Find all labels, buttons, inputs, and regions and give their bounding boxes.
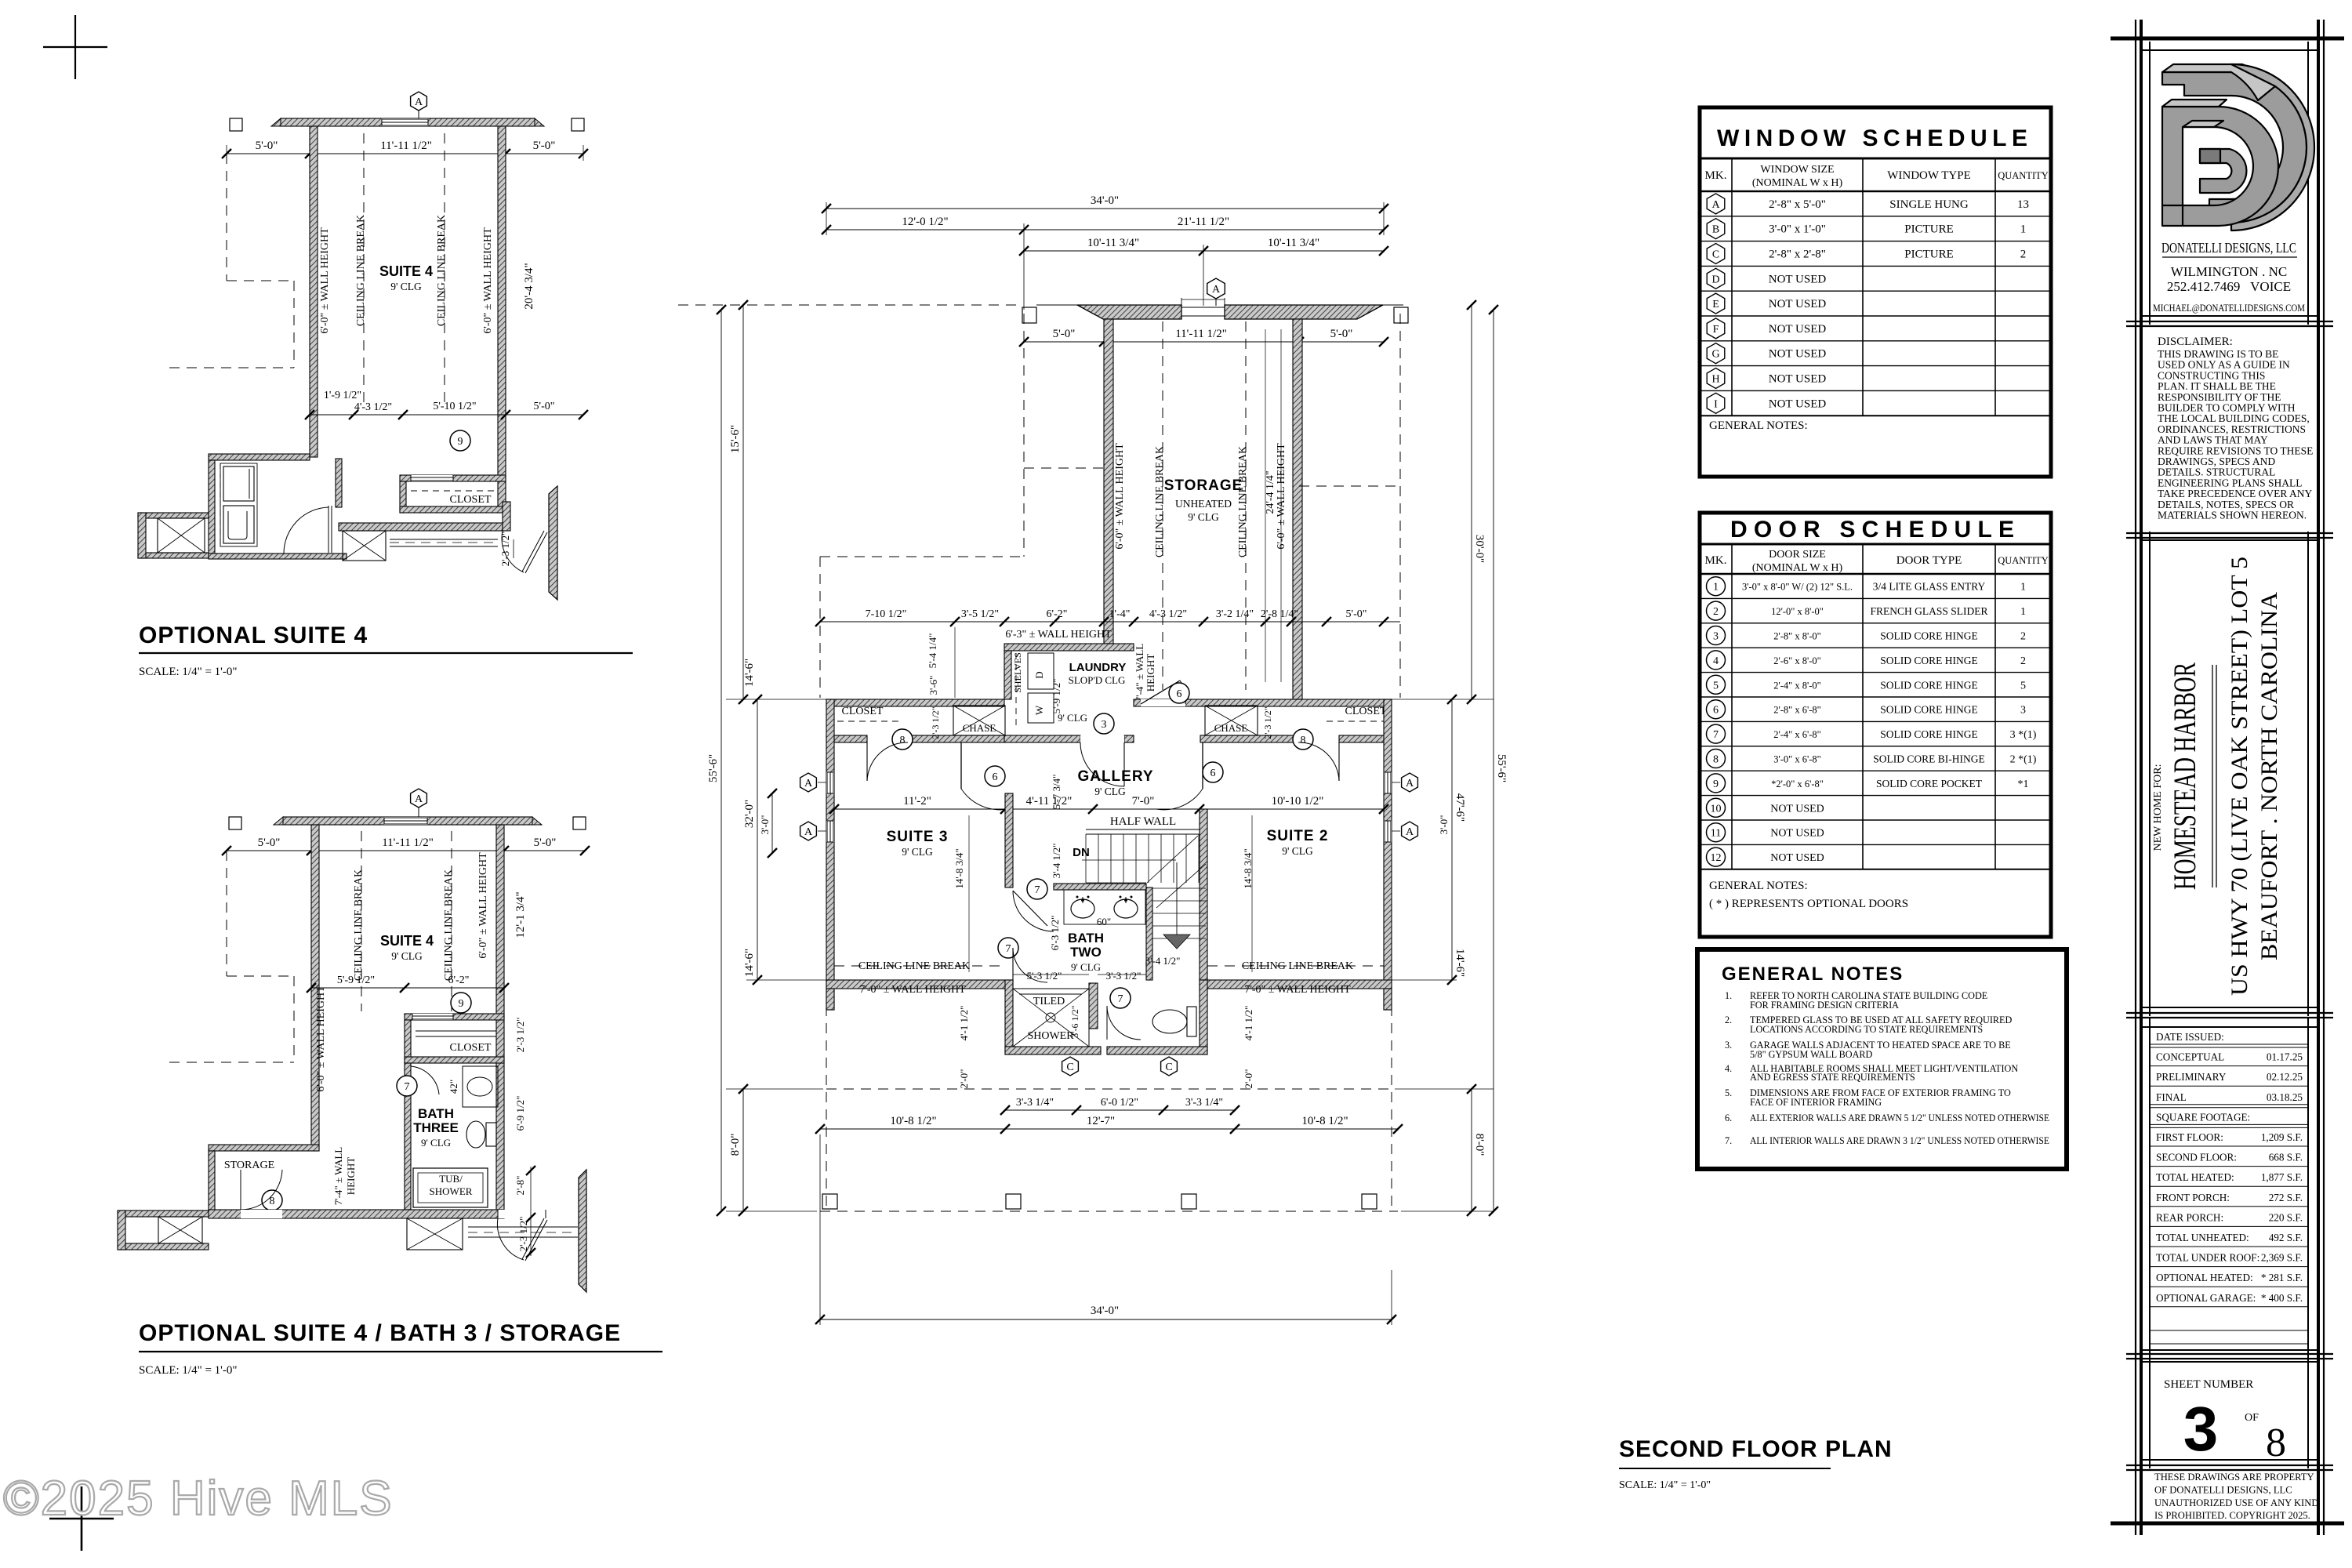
svg-text:SUITE 4: SUITE 4 bbox=[380, 933, 434, 949]
svg-text:SCALE: 1/4" = 1'-0": SCALE: 1/4" = 1'-0" bbox=[1619, 1479, 1711, 1491]
svg-text:DOOR SCHEDULE: DOOR SCHEDULE bbox=[1730, 517, 2020, 543]
svg-text:B: B bbox=[1712, 224, 1719, 236]
svg-text:SHEET NUMBER: SHEET NUMBER bbox=[2164, 1378, 2253, 1391]
svg-text:9: 9 bbox=[459, 998, 464, 1010]
svg-text:(NOMINAL W x H): (NOMINAL W x H) bbox=[1752, 562, 1843, 574]
svg-text:SCALE: 1/4" = 1'-0": SCALE: 1/4" = 1'-0" bbox=[139, 1364, 238, 1377]
svg-text:60": 60" bbox=[1097, 916, 1111, 927]
svg-text:1'-4": 1'-4" bbox=[1109, 608, 1131, 620]
svg-text:MK.: MK. bbox=[1705, 169, 1727, 182]
svg-text:FIRST FLOOR:: FIRST FLOOR: bbox=[2156, 1131, 2223, 1143]
svg-text:55'-6": 55'-6" bbox=[707, 754, 720, 782]
svg-text:NOT USED: NOT USED bbox=[1769, 298, 1827, 310]
svg-text:11'-11 1/2": 11'-11 1/2" bbox=[1175, 328, 1227, 340]
svg-text:1: 1 bbox=[2020, 582, 2026, 593]
svg-text:CLOSET: CLOSET bbox=[842, 706, 884, 717]
svg-text:3'-4 1/2": 3'-4 1/2" bbox=[1051, 844, 1062, 879]
svg-text:1,209 S.F.: 1,209 S.F. bbox=[2261, 1131, 2303, 1143]
svg-text:CEILING LINE BREAK: CEILING LINE BREAK bbox=[1154, 446, 1166, 557]
svg-text:6.: 6. bbox=[1725, 1112, 1732, 1123]
svg-text:13: 13 bbox=[2017, 198, 2029, 211]
svg-text:HEIGHT: HEIGHT bbox=[345, 1157, 357, 1195]
svg-text:9' CLG: 9' CLG bbox=[902, 846, 933, 858]
svg-text:9: 9 bbox=[1713, 779, 1719, 790]
svg-text:3'-2 1/4": 3'-2 1/4" bbox=[1216, 608, 1254, 620]
svg-text:A: A bbox=[1212, 284, 1221, 296]
svg-text:DONATELLI DESIGNS, LLC: DONATELLI DESIGNS, LLC bbox=[2161, 240, 2296, 256]
svg-text:3'-0" x 6'-8": 3'-0" x 6'-8" bbox=[1773, 754, 1821, 765]
svg-text:6'-0" ± WALL HEIGHT: 6'-0" ± WALL HEIGHT bbox=[1276, 443, 1287, 550]
svg-text:WINDOW SIZE: WINDOW SIZE bbox=[1760, 164, 1834, 176]
svg-text:10: 10 bbox=[1711, 803, 1722, 815]
svg-text:10'-8 1/2": 10'-8 1/2" bbox=[890, 1115, 936, 1127]
svg-text:34'-0": 34'-0" bbox=[1091, 194, 1119, 207]
svg-text:24'-4 1/4": 24'-4 1/4" bbox=[1265, 470, 1276, 514]
svg-text:SECOND FLOOR:: SECOND FLOOR: bbox=[2156, 1152, 2237, 1163]
svg-text:32'-0": 32'-0" bbox=[743, 800, 756, 828]
svg-text:1: 1 bbox=[2020, 223, 2027, 236]
svg-text:NOT USED: NOT USED bbox=[1770, 828, 1824, 840]
svg-text:MATERIALS SHOWN HEREON.: MATERIALS SHOWN HEREON. bbox=[2158, 510, 2307, 521]
svg-text:TILED: TILED bbox=[1033, 996, 1065, 1007]
svg-text:WILMINGTON . NC: WILMINGTON . NC bbox=[2171, 264, 2287, 279]
svg-text:8'-0": 8'-0" bbox=[1473, 1134, 1486, 1156]
svg-text:*1: *1 bbox=[2018, 779, 2029, 790]
svg-text:CEILING LINE BREAK: CEILING LINE BREAK bbox=[436, 215, 448, 326]
svg-text:2'-8" x 6'-8": 2'-8" x 6'-8" bbox=[1773, 705, 1821, 716]
svg-text:THREE: THREE bbox=[413, 1120, 459, 1135]
svg-text:7'-4" ± WALL: 7'-4" ± WALL bbox=[1134, 644, 1145, 702]
svg-text:FRENCH GLASS SLIDER: FRENCH GLASS SLIDER bbox=[1870, 605, 1987, 617]
svg-text:SQUARE FOOTAGE:: SQUARE FOOTAGE: bbox=[2156, 1111, 2250, 1123]
svg-text:6'-2": 6'-2" bbox=[448, 975, 470, 986]
svg-text:6: 6 bbox=[1713, 705, 1719, 717]
svg-text:10'-11 3/4": 10'-11 3/4" bbox=[1268, 237, 1319, 249]
svg-text:9' CLG: 9' CLG bbox=[1282, 845, 1313, 857]
svg-text:DOOR TYPE: DOOR TYPE bbox=[1896, 554, 1962, 567]
svg-text:NOT USED: NOT USED bbox=[1769, 323, 1827, 336]
svg-text:4: 4 bbox=[1713, 655, 1719, 667]
svg-text:2'-3 1/2": 2'-3 1/2" bbox=[514, 1018, 526, 1053]
svg-text:3: 3 bbox=[2020, 705, 2026, 717]
svg-text:GENERAL NOTES:: GENERAL NOTES: bbox=[1709, 880, 1808, 892]
svg-text:2'-8": 2'-8" bbox=[514, 1176, 526, 1196]
svg-text:SUITE 3: SUITE 3 bbox=[887, 829, 949, 845]
svg-text:2'-3 1/2": 2'-3 1/2" bbox=[517, 1217, 529, 1252]
svg-text:6'-3 1/2": 6'-3 1/2" bbox=[1049, 916, 1061, 951]
svg-text:* 281 S.F.: * 281 S.F. bbox=[2261, 1272, 2303, 1283]
svg-text:( * ) REPRESENTS OPTIONAL DOOR: ( * ) REPRESENTS OPTIONAL DOORS bbox=[1709, 898, 1908, 910]
svg-text:NOT USED: NOT USED bbox=[1770, 852, 1824, 864]
svg-text:5'-9 1/2": 5'-9 1/2" bbox=[1051, 679, 1062, 714]
svg-text:7'-0": 7'-0" bbox=[1132, 795, 1155, 808]
svg-text:2'-0": 2'-0" bbox=[958, 1069, 970, 1089]
svg-text:3'-0" x 1'-0": 3'-0" x 1'-0" bbox=[1769, 223, 1826, 236]
svg-text:1.: 1. bbox=[1725, 990, 1732, 1001]
svg-text:REAR PORCH:: REAR PORCH: bbox=[2156, 1211, 2223, 1223]
svg-text:A: A bbox=[1406, 826, 1414, 838]
svg-text:2: 2 bbox=[1713, 606, 1719, 618]
svg-text:272 S.F.: 272 S.F. bbox=[2269, 1192, 2303, 1203]
svg-text:02.12.25: 02.12.25 bbox=[2267, 1071, 2303, 1083]
svg-text:3'-3 1/4": 3'-3 1/4" bbox=[1185, 1097, 1223, 1109]
svg-text:5'-0": 5'-0" bbox=[1053, 328, 1076, 340]
svg-text:30'-0": 30'-0" bbox=[1473, 535, 1486, 563]
svg-text:CEILING LINE BREAK: CEILING LINE BREAK bbox=[443, 869, 455, 981]
svg-text:03.18.25: 03.18.25 bbox=[2267, 1091, 2303, 1103]
svg-text:11'-2": 11'-2" bbox=[903, 795, 931, 808]
svg-text:3'-0" x 8'-0" W/ (2) 12" S.L.: 3'-0" x 8'-0" W/ (2) 12" S.L. bbox=[1742, 582, 1853, 593]
svg-text:668 S.F.: 668 S.F. bbox=[2269, 1152, 2303, 1163]
svg-text:14'-6": 14'-6" bbox=[743, 659, 756, 687]
svg-text:OF: OF bbox=[2245, 1412, 2259, 1424]
svg-text:5'-0": 5'-0" bbox=[258, 837, 281, 849]
svg-text:12'-0" x 8'-0": 12'-0" x 8'-0" bbox=[1771, 606, 1824, 617]
svg-text:9: 9 bbox=[458, 436, 463, 448]
svg-text:GALLERY: GALLERY bbox=[1077, 768, 1153, 785]
svg-text:THESE DRAWINGS ARE PROPERTY: THESE DRAWINGS ARE PROPERTY bbox=[2154, 1472, 2314, 1483]
svg-text:A: A bbox=[1711, 199, 1720, 211]
svg-text:7: 7 bbox=[1035, 884, 1040, 896]
svg-text:NOT USED: NOT USED bbox=[1769, 348, 1827, 361]
svg-text:CONCEPTUAL: CONCEPTUAL bbox=[2156, 1051, 2224, 1063]
svg-text:UNAUTHORIZED USE OF ANY KIND: UNAUTHORIZED USE OF ANY KIND bbox=[2154, 1497, 2318, 1508]
svg-text:DOOR SIZE: DOOR SIZE bbox=[1769, 549, 1826, 561]
svg-text:10'-8 1/2": 10'-8 1/2" bbox=[1301, 1115, 1348, 1127]
svg-text:HEIGHT: HEIGHT bbox=[1145, 654, 1156, 691]
svg-text:8: 8 bbox=[1301, 735, 1306, 746]
svg-text:G: G bbox=[1711, 349, 1719, 361]
svg-text:3'-3 1/4": 3'-3 1/4" bbox=[1016, 1097, 1054, 1109]
svg-text:20'-4 3/4": 20'-4 3/4" bbox=[523, 263, 535, 309]
svg-text:4'-1 1/2": 4'-1 1/2" bbox=[1243, 1006, 1254, 1041]
svg-text:252.412.7469 VOICE: 252.412.7469 VOICE bbox=[2167, 279, 2291, 294]
svg-text:A: A bbox=[1406, 778, 1414, 789]
svg-text:2'-3 1/2": 2'-3 1/2" bbox=[499, 532, 511, 567]
svg-text:(NOMINAL W x H): (NOMINAL W x H) bbox=[1752, 177, 1843, 189]
svg-text:12'-7": 12'-7" bbox=[1087, 1115, 1115, 1127]
svg-text:55'-6": 55'-6" bbox=[1495, 754, 1508, 782]
svg-text:12: 12 bbox=[1711, 852, 1722, 864]
svg-text:8: 8 bbox=[1713, 754, 1719, 766]
svg-text:5'-9 1/2": 5'-9 1/2" bbox=[337, 975, 375, 986]
svg-text:CHASE: CHASE bbox=[1214, 722, 1248, 734]
svg-text:9' CLG: 9' CLG bbox=[421, 1137, 451, 1149]
svg-text:CEILING LINE BREAK: CEILING LINE BREAK bbox=[858, 960, 970, 972]
svg-text:ALL INTERIOR WALLS ARE DRAWN 3: ALL INTERIOR WALLS ARE DRAWN 3 1/2" UNLE… bbox=[1750, 1135, 2049, 1146]
svg-text:I: I bbox=[1714, 398, 1718, 410]
svg-text:SOLID CORE HINGE: SOLID CORE HINGE bbox=[1880, 655, 1978, 666]
svg-text:2'-4" x 8'-0": 2'-4" x 8'-0" bbox=[1773, 680, 1821, 691]
svg-text:NEW HOME FOR:: NEW HOME FOR: bbox=[2152, 764, 2164, 851]
svg-text:2'-3 1/2": 2'-3 1/2" bbox=[930, 706, 941, 739]
svg-text:PICTURE: PICTURE bbox=[1904, 249, 1954, 261]
svg-text:* 400 S.F.: * 400 S.F. bbox=[2261, 1292, 2303, 1304]
svg-text:6: 6 bbox=[1210, 768, 1216, 779]
svg-text:HOMESTEAD HARBOR: HOMESTEAD HARBOR bbox=[2167, 662, 2202, 890]
svg-text:7-10 1/2": 7-10 1/2" bbox=[866, 608, 907, 620]
svg-text:BATH: BATH bbox=[1068, 931, 1104, 946]
svg-text:3: 3 bbox=[1713, 631, 1719, 643]
svg-text:SOLID CORE HINGE: SOLID CORE HINGE bbox=[1880, 630, 1978, 642]
svg-text:NOT USED: NOT USED bbox=[1770, 803, 1824, 815]
svg-text:AND EGRESS STATE REQUIREMENTS: AND EGRESS STATE REQUIREMENTS bbox=[1750, 1072, 1915, 1083]
svg-text:3: 3 bbox=[1102, 719, 1107, 731]
svg-text:5: 5 bbox=[2020, 680, 2026, 691]
svg-text:5'-0": 5'-0" bbox=[1346, 608, 1367, 620]
svg-text:OPTIONAL SUITE 4 / BATH 3 / ST: OPTIONAL SUITE 4 / BATH 3 / STORAGE bbox=[139, 1320, 621, 1346]
svg-text:4'-3 1/2": 4'-3 1/2" bbox=[1149, 608, 1187, 620]
svg-text:3'-0": 3'-0" bbox=[759, 815, 771, 835]
svg-text:5'-0": 5'-0" bbox=[534, 837, 557, 849]
svg-text:5: 5 bbox=[1713, 680, 1719, 691]
svg-text:2'-6" x 8'-0": 2'-6" x 8'-0" bbox=[1773, 655, 1821, 666]
svg-text:9' CLG: 9' CLG bbox=[1058, 712, 1087, 724]
svg-text:TOTAL HEATED:: TOTAL HEATED: bbox=[2156, 1171, 2234, 1183]
svg-text:3/4 LITE GLASS ENTRY: 3/4 LITE GLASS ENTRY bbox=[1873, 581, 1986, 593]
svg-text:4'-3 1/2": 4'-3 1/2" bbox=[354, 401, 392, 413]
svg-text:W: W bbox=[1033, 705, 1045, 715]
svg-text:9' CLG: 9' CLG bbox=[391, 950, 423, 962]
svg-text:CEILING LINE BREAK: CEILING LINE BREAK bbox=[1242, 960, 1353, 972]
svg-text:10'-10 1/2": 10'-10 1/2" bbox=[1272, 795, 1324, 808]
svg-text:5'-0": 5'-0" bbox=[533, 140, 556, 152]
svg-text:NOT USED: NOT USED bbox=[1769, 373, 1827, 386]
svg-text:11'-11 1/2": 11'-11 1/2" bbox=[382, 837, 434, 849]
svg-text:DISCLAIMER:: DISCLAIMER: bbox=[2158, 336, 2233, 348]
svg-text:1'-9 1/2": 1'-9 1/2" bbox=[324, 390, 361, 401]
svg-text:2 *(1): 2 *(1) bbox=[2010, 754, 2037, 766]
svg-text:SUITE 2: SUITE 2 bbox=[1267, 828, 1329, 844]
svg-text:9' CLG: 9' CLG bbox=[1094, 786, 1126, 797]
svg-text:NOT USED: NOT USED bbox=[1769, 273, 1827, 285]
svg-text:47'-6": 47'-6" bbox=[1454, 793, 1466, 822]
svg-text:2'-0": 2'-0" bbox=[1243, 1069, 1254, 1089]
svg-text:CEILING LINE BREAK: CEILING LINE BREAK bbox=[1237, 446, 1249, 557]
svg-text:*2'-0" x 6'-8": *2'-0" x 6'-8" bbox=[1771, 779, 1824, 789]
svg-text:SHOWER: SHOWER bbox=[1027, 1030, 1074, 1042]
svg-text:TOTAL UNHEATED:: TOTAL UNHEATED: bbox=[2156, 1232, 2249, 1243]
svg-text:CLOSET: CLOSET bbox=[450, 1042, 492, 1054]
svg-text:CEILING LINE BREAK: CEILING LINE BREAK bbox=[353, 869, 365, 981]
svg-text:D: D bbox=[1033, 671, 1045, 678]
svg-text:8: 8 bbox=[2266, 1421, 2286, 1465]
svg-text:SECOND FLOOR PLAN: SECOND FLOOR PLAN bbox=[1619, 1436, 1893, 1462]
svg-text:3'-0": 3'-0" bbox=[1438, 815, 1450, 835]
svg-text:2'-8 1/4": 2'-8 1/4" bbox=[1261, 608, 1298, 620]
svg-text:US HWY 70 (LIVE OAK STREET) LO: US HWY 70 (LIVE OAK STREET) LOT 5 bbox=[2227, 557, 2252, 996]
svg-text:FINAL: FINAL bbox=[2156, 1091, 2187, 1103]
svg-text:7: 7 bbox=[1713, 729, 1719, 741]
svg-text:SHOWER: SHOWER bbox=[430, 1185, 473, 1197]
svg-text:OPTIONAL HEATED:: OPTIONAL HEATED: bbox=[2156, 1272, 2253, 1283]
svg-text:LAUNDRY: LAUNDRY bbox=[1069, 661, 1127, 674]
svg-text:6'-9 1/2": 6'-9 1/2" bbox=[514, 1096, 526, 1131]
svg-text:WINDOW TYPE: WINDOW TYPE bbox=[1887, 169, 1971, 182]
svg-text:220 S.F.: 220 S.F. bbox=[2269, 1211, 2303, 1223]
svg-text:2.: 2. bbox=[1725, 1014, 1732, 1025]
svg-text:MK.: MK. bbox=[1705, 554, 1727, 567]
svg-text:OPTIONAL SUITE 4: OPTIONAL SUITE 4 bbox=[139, 622, 368, 648]
svg-text:8: 8 bbox=[900, 735, 906, 746]
svg-text:7.: 7. bbox=[1725, 1135, 1732, 1146]
svg-text:7: 7 bbox=[1006, 943, 1011, 955]
svg-text:6: 6 bbox=[1177, 688, 1182, 700]
svg-text:9' CLG: 9' CLG bbox=[390, 281, 422, 292]
svg-text:SOLID CORE POCKET: SOLID CORE POCKET bbox=[1876, 778, 1983, 789]
svg-text:2: 2 bbox=[2020, 631, 2026, 643]
svg-text:7'-0" ± WALL HEIGHT: 7'-0" ± WALL HEIGHT bbox=[1244, 984, 1351, 996]
svg-text:14'-8 3/4": 14'-8 3/4" bbox=[953, 848, 965, 888]
svg-text:2'-8" x 2'-8": 2'-8" x 2'-8" bbox=[1769, 249, 1826, 261]
svg-text:4'-11 1/2": 4'-11 1/2" bbox=[1026, 795, 1073, 808]
svg-text:492 S.F.: 492 S.F. bbox=[2269, 1232, 2303, 1243]
svg-text:01.17.25: 01.17.25 bbox=[2267, 1051, 2303, 1063]
svg-text:2'-3 1/2": 2'-3 1/2" bbox=[1262, 706, 1273, 739]
svg-text:HALF WALL: HALF WALL bbox=[1110, 815, 1176, 828]
svg-text:C: C bbox=[1712, 249, 1719, 261]
svg-text:FOR FRAMING DESIGN CRITERIA: FOR FRAMING DESIGN CRITERIA bbox=[1750, 1000, 1899, 1011]
svg-text:2: 2 bbox=[2020, 655, 2026, 667]
svg-text:C: C bbox=[1066, 1062, 1073, 1073]
svg-text:ALL EXTERIOR WALLS ARE DRAWN 5: ALL EXTERIOR WALLS ARE DRAWN 5 1/2" UNLE… bbox=[1750, 1112, 2049, 1123]
svg-text:11'-11 1/2": 11'-11 1/2" bbox=[380, 140, 432, 152]
svg-text:6'-2": 6'-2" bbox=[1047, 608, 1068, 620]
svg-text:F: F bbox=[1713, 324, 1719, 336]
svg-text:6'-0 1/2": 6'-0 1/2" bbox=[1101, 1097, 1138, 1109]
svg-text:1: 1 bbox=[2020, 606, 2026, 618]
svg-text:OPTIONAL GARAGE:: OPTIONAL GARAGE: bbox=[2156, 1292, 2256, 1304]
svg-text:10'-11 3/4": 10'-11 3/4" bbox=[1087, 237, 1139, 249]
svg-text:2'-8" x 5'-0": 2'-8" x 5'-0" bbox=[1769, 198, 1826, 211]
svg-text:SCALE: 1/4" = 1'-0": SCALE: 1/4" = 1'-0" bbox=[139, 666, 238, 678]
svg-text:OF DONATELLI DESIGNS, LLC: OF DONATELLI DESIGNS, LLC bbox=[2154, 1484, 2292, 1495]
svg-text:3 *(1): 3 *(1) bbox=[2010, 729, 2037, 741]
svg-text:5'-0": 5'-0" bbox=[256, 140, 278, 152]
svg-text:SOLID CORE HINGE: SOLID CORE HINGE bbox=[1880, 728, 1978, 740]
svg-text:GENERAL NOTES: GENERAL NOTES bbox=[1722, 964, 1904, 985]
svg-text:5'-3 1/2": 5'-3 1/2" bbox=[1027, 970, 1062, 982]
svg-text:5'-0": 5'-0" bbox=[1330, 328, 1353, 340]
svg-text:MICHAEL@DONATELLIDESIGNS.COM: MICHAEL@DONATELLIDESIGNS.COM bbox=[2153, 303, 2305, 314]
svg-text:2'-4" x 6'-8": 2'-4" x 6'-8" bbox=[1773, 729, 1821, 740]
svg-text:IS PROHIBITED. COPYRIGHT 2025.: IS PROHIBITED. COPYRIGHT 2025. bbox=[2154, 1510, 2310, 1521]
svg-text:15'-6": 15'-6" bbox=[729, 425, 742, 453]
svg-text:6'-0" ± WALL HEIGHT: 6'-0" ± WALL HEIGHT bbox=[1114, 443, 1126, 550]
svg-text:BATH: BATH bbox=[418, 1106, 454, 1121]
svg-text:2'-8" x 8'-0": 2'-8" x 8'-0" bbox=[1773, 631, 1821, 642]
svg-text:A: A bbox=[804, 778, 813, 789]
svg-text:4.: 4. bbox=[1725, 1063, 1732, 1074]
svg-text:6: 6 bbox=[993, 771, 998, 783]
svg-text:CEILING LINE BREAK: CEILING LINE BREAK bbox=[355, 215, 367, 326]
svg-text:FRONT PORCH:: FRONT PORCH: bbox=[2156, 1192, 2230, 1203]
svg-text:3'-4 1/2": 3'-4 1/2" bbox=[1145, 955, 1181, 967]
svg-text:4'-1 1/2": 4'-1 1/2" bbox=[958, 1006, 970, 1041]
svg-text:6'-3" ± WALL HEIGHT: 6'-3" ± WALL HEIGHT bbox=[1005, 629, 1112, 641]
svg-text:2,369 S.F.: 2,369 S.F. bbox=[2261, 1252, 2303, 1264]
svg-text:14'-6": 14'-6" bbox=[743, 949, 756, 977]
svg-text:7'-0" ± WALL HEIGHT: 7'-0" ± WALL HEIGHT bbox=[859, 984, 966, 996]
svg-text:TWO: TWO bbox=[1070, 945, 1102, 960]
svg-text:TOTAL UNDER ROOF:: TOTAL UNDER ROOF: bbox=[2156, 1252, 2259, 1264]
svg-text:CLOSET: CLOSET bbox=[450, 494, 492, 506]
svg-text:GENERAL NOTES:: GENERAL NOTES: bbox=[1709, 419, 1808, 432]
svg-text:SHELVES: SHELVES bbox=[1012, 652, 1023, 693]
svg-text:34'-0": 34'-0" bbox=[1091, 1305, 1119, 1317]
svg-text:LOCATIONS ACCORDING TO STATE R: LOCATIONS ACCORDING TO STATE REQUIREMENT… bbox=[1750, 1024, 1983, 1035]
svg-text:11: 11 bbox=[1711, 828, 1721, 840]
svg-text:3: 3 bbox=[2183, 1394, 2219, 1464]
svg-text:5'-0": 5'-0" bbox=[534, 401, 555, 412]
svg-text:5.: 5. bbox=[1725, 1087, 1732, 1098]
svg-text:6'-0" ± WALL HEIGHT: 6'-0" ± WALL HEIGHT bbox=[477, 852, 489, 959]
svg-text:6'-0" ± WALL HEIGHT: 6'-0" ± WALL HEIGHT bbox=[482, 227, 494, 334]
svg-text:3'-6 1/2": 3'-6 1/2" bbox=[1069, 1005, 1080, 1037]
svg-text:9' CLG: 9' CLG bbox=[1071, 961, 1101, 973]
svg-text:SOLID CORE HINGE: SOLID CORE HINGE bbox=[1880, 679, 1978, 691]
svg-text:12'-1 3/4": 12'-1 3/4" bbox=[514, 891, 527, 938]
svg-text:7: 7 bbox=[1118, 993, 1123, 1005]
svg-text:PRELIMINARY: PRELIMINARY bbox=[2156, 1071, 2227, 1083]
svg-text:WINDOW SCHEDULE: WINDOW SCHEDULE bbox=[1717, 125, 2034, 151]
svg-text:3'-5 1/2": 3'-5 1/2" bbox=[961, 608, 999, 620]
svg-text:5/8" GYPSUM WALL BOARD: 5/8" GYPSUM WALL BOARD bbox=[1750, 1049, 1873, 1060]
svg-text:12'-0 1/2": 12'-0 1/2" bbox=[902, 216, 948, 228]
svg-text:A: A bbox=[415, 96, 423, 108]
svg-text:SLOP'D CLG: SLOP'D CLG bbox=[1069, 674, 1126, 686]
svg-text:A: A bbox=[804, 826, 813, 838]
svg-text:1,877 S.F.: 1,877 S.F. bbox=[2261, 1171, 2303, 1183]
svg-text:CHASE: CHASE bbox=[963, 722, 996, 734]
svg-text:FACE OF INTERIOR FRAMING: FACE OF INTERIOR FRAMING bbox=[1750, 1097, 1882, 1108]
svg-text:PICTURE: PICTURE bbox=[1904, 223, 1954, 236]
svg-text:DATE ISSUED:: DATE ISSUED: bbox=[2156, 1031, 2224, 1043]
svg-text:14'-6": 14'-6" bbox=[1454, 949, 1466, 977]
svg-text:D: D bbox=[1711, 274, 1719, 285]
svg-text:9' CLG: 9' CLG bbox=[1188, 511, 1219, 523]
svg-text:7: 7 bbox=[405, 1081, 410, 1093]
svg-text:SOLID CORE BI-HINGE: SOLID CORE BI-HINGE bbox=[1873, 753, 1985, 765]
svg-text:TUB/: TUB/ bbox=[439, 1173, 463, 1185]
svg-text:42": 42" bbox=[448, 1080, 459, 1094]
svg-text:21'-11 1/2": 21'-11 1/2" bbox=[1178, 216, 1229, 228]
svg-text:H: H bbox=[1711, 374, 1719, 386]
svg-text:2: 2 bbox=[2020, 249, 2027, 261]
svg-text:8'-0": 8'-0" bbox=[729, 1134, 742, 1156]
svg-text:SUITE 4: SUITE 4 bbox=[379, 263, 433, 279]
svg-text:CLOSET: CLOSET bbox=[1345, 706, 1387, 717]
svg-text:BEAUFORT . NORTH CAROLINA: BEAUFORT . NORTH CAROLINA bbox=[2256, 592, 2282, 960]
svg-text:5'-4 1/4": 5'-4 1/4" bbox=[927, 633, 938, 669]
svg-text:C: C bbox=[1165, 1062, 1172, 1073]
svg-text:QUANTITY: QUANTITY bbox=[1998, 555, 2049, 566]
svg-text:STORAGE: STORAGE bbox=[224, 1160, 274, 1171]
svg-text:E: E bbox=[1712, 299, 1719, 310]
svg-text:DN: DN bbox=[1073, 846, 1090, 859]
svg-text:3.: 3. bbox=[1725, 1040, 1732, 1051]
svg-text:UNHEATED: UNHEATED bbox=[1175, 498, 1232, 510]
svg-text:1: 1 bbox=[1713, 582, 1719, 593]
svg-text:3'-6": 3'-6" bbox=[927, 676, 939, 695]
svg-text:SOLID CORE HINGE: SOLID CORE HINGE bbox=[1880, 704, 1978, 716]
svg-text:QUANTITY: QUANTITY bbox=[1998, 170, 2049, 181]
svg-text:NOT USED: NOT USED bbox=[1769, 397, 1827, 410]
svg-text:3'-3 1/2": 3'-3 1/2" bbox=[1106, 970, 1142, 982]
svg-text:5'-10 1/2": 5'-10 1/2" bbox=[433, 401, 476, 412]
svg-text:6'-0" ± WALL HEIGHT: 6'-0" ± WALL HEIGHT bbox=[315, 985, 327, 1092]
svg-text:SINGLE HUNG: SINGLE HUNG bbox=[1889, 198, 1969, 211]
